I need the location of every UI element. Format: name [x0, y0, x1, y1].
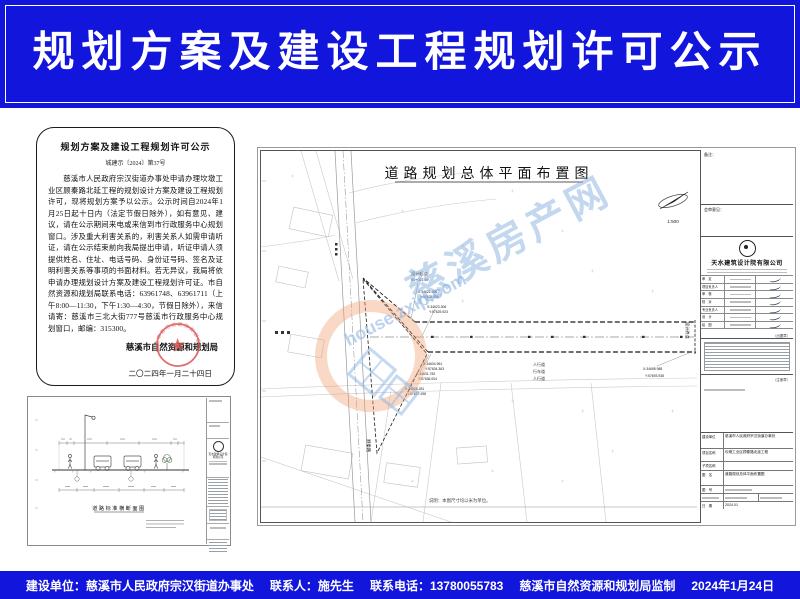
parcel-lines — [261, 151, 697, 522]
frame-margin-ticks — [262, 181, 266, 461]
pedestrian-icons — [68, 455, 158, 469]
remark-label: 备注： — [701, 150, 793, 158]
corridor-centerline — [370, 336, 696, 338]
coord-text: Y:57625.456 — [420, 295, 439, 299]
coord-text: X:34698.988 — [643, 367, 662, 371]
coord-text: X:34623.306 — [427, 305, 446, 309]
coord-text: Y:57637.498 — [407, 392, 426, 396]
end-label: 设计终点 — [684, 322, 691, 339]
notice-title: 规划方案及建设工程规划许可公示 — [37, 140, 234, 153]
header-inner-border — [5, 5, 795, 103]
lane-label: 人行道 — [533, 361, 545, 367]
margin-ticks — [35, 420, 38, 508]
public-notice-poster: 规划方案及建设工程规划许可公示 规划方案及建设工程规划许可公示 城建示〔2024… — [0, 0, 800, 599]
notice-body: 慈溪市人民政府宗汉街道办事处申请办理坎墩工业区顾秦路北延工程的规划设计方案及建设… — [48, 173, 223, 334]
lane-label: 行车道 — [533, 368, 545, 374]
footer-supervisor: 慈溪市自然资源和规划局监制 — [519, 577, 675, 594]
stamp-note: （出图章） — [773, 333, 790, 338]
signature-table: 审 定 项目负责人 审 核 校 对 专业负责人 设 计 绘 图 — [701, 275, 793, 329]
footer-banner: 建设单位：慈溪市人民政府宗汉街道办事处 联系人：施先生 联系电话：1378005… — [0, 571, 800, 599]
cross-section-titleblock: 天水建筑设计院有限公司 — [206, 398, 229, 544]
company-logo-icon — [213, 441, 224, 452]
footer-builder: 建设单位：慈溪市人民政府宗汉街道办事处 — [26, 577, 254, 594]
reg-note: （注册章） — [773, 377, 790, 382]
leader-lines — [409, 283, 689, 387]
signature-rows — [207, 478, 229, 507]
dimension-numbers — [61, 439, 177, 487]
lane-label: 人行道 — [533, 375, 545, 381]
notice-card: 规划方案及建设工程规划许可公示 城建示〔2024〕第37号 慈溪市人民政府宗汉街… — [36, 127, 235, 386]
dimension-lines — [59, 441, 184, 492]
tree-icon — [162, 455, 172, 471]
company-name: 天水建筑设计院有限公司 — [208, 453, 228, 459]
official-seal-icon: 慈溪市自然资源和规划局 — [153, 320, 204, 371]
footer-phone: 联系电话：13780055783 — [370, 577, 503, 594]
header-banner: 规划方案及建设工程规划许可公示 — [0, 0, 800, 108]
start-chainage: K0+021.69 — [411, 278, 429, 282]
site-plan-drawing: 道路规划总体平面布置图 1:500 设计起点 K0+021.69 X:34621… — [261, 151, 697, 522]
notice-date: 二〇二四年一月二十四日 — [128, 368, 212, 379]
coord-text: Y:57636.004 — [418, 377, 437, 381]
site-plan-card: 道路规划总体平面布置图 1:500 设计起点 K0+021.69 X:34621… — [257, 147, 796, 526]
review-label: 会审意见： — [701, 205, 793, 213]
registration-stamp-block — [704, 342, 790, 371]
coord-text: X:34634.961 — [423, 362, 442, 366]
company-name: 天水建筑设计院有限公司 — [701, 258, 793, 267]
coord-text: Y:57625.923 — [429, 310, 448, 314]
plan-titleblock: 备注： 会审意见： 天水建筑设计院有限公司 审 定 项目负责人 审 核 校 对 … — [700, 150, 793, 523]
start-label: 设计起点 — [411, 270, 428, 277]
coord-text: Y:57693.938 — [645, 374, 664, 378]
cross-section-card: 道路标准横断面图 天水建筑设计院有限公司 — [27, 396, 231, 546]
plan-scale: 1:500 — [667, 219, 679, 224]
coord-text: Y:57634.363 — [425, 367, 444, 371]
footer-contact: 联系人：施先生 — [270, 577, 354, 594]
footer-date: 2024年1月24日 — [691, 577, 774, 594]
glyph-placeholders — [275, 243, 338, 334]
survey-marks — [291, 175, 674, 483]
note-lines — [146, 520, 184, 528]
ground-line — [52, 470, 189, 481]
notice-doc-number: 城建示〔2024〕第37号 — [37, 158, 234, 167]
cross-section-title: 道路标准横断面图 — [92, 504, 146, 512]
north-arrow-icon: 1:500 — [657, 192, 689, 224]
planned-road-corridor — [363, 278, 696, 453]
street-lamp-icon — [83, 415, 96, 470]
info-table: 建设单位 慈溪市人民政府宗汉街道办事处 项目名称 坎墩工业区顾秦路北延工程 子项… — [701, 433, 793, 515]
company-logo-icon — [739, 240, 756, 257]
cross-section-drawing: 道路标准横断面图 — [34, 400, 204, 536]
road-name-label: 顾秦路 — [365, 439, 372, 453]
existing-road — [335, 151, 371, 522]
coord-text: X:34628.281 — [405, 387, 424, 391]
vehicle-icons — [94, 456, 141, 471]
building-outlines — [276, 207, 488, 487]
coord-text: X:34621.306 — [418, 290, 437, 294]
coord-text: X:34631.782 — [416, 372, 435, 376]
plan-note: 说明：本图尺寸均以米为单位。 — [429, 497, 490, 504]
plan-title: 道路规划总体平面布置图 — [385, 165, 594, 181]
